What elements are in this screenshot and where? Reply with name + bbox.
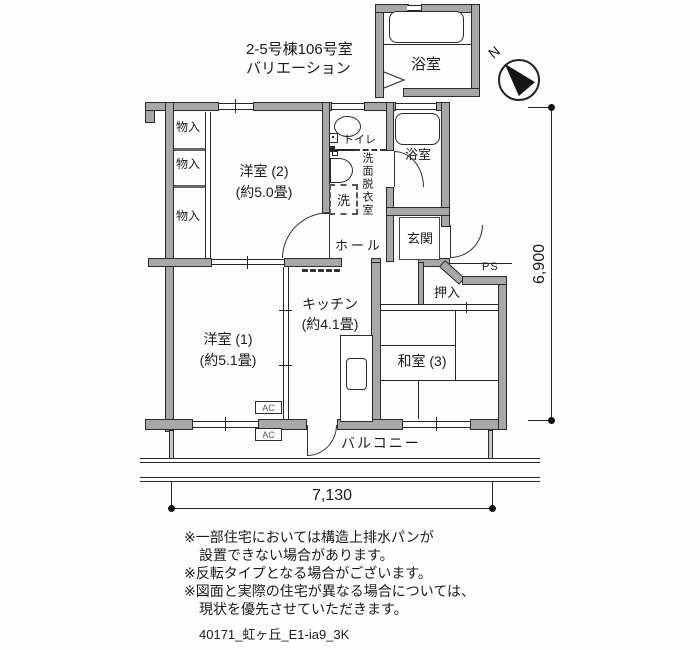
north-label: N <box>485 43 503 62</box>
ac-unit-2: AC <box>255 428 282 441</box>
room-label-hall: ホール <box>322 235 396 254</box>
note-line: 設置できない場合があります。 <box>184 546 475 564</box>
room-size: (約5.1畳) <box>167 350 289 371</box>
laundry-box: 洗 <box>329 184 358 215</box>
folding-door-icon <box>383 71 407 91</box>
window-tick <box>235 99 236 113</box>
dim-height-label: 6,900 <box>531 229 549 299</box>
room-label-washroom: 洗面脱衣室 <box>359 152 375 217</box>
note-line: ※反転タイプとなる場合がございます。 <box>184 564 475 582</box>
ac-label: AC <box>262 430 275 440</box>
room-size: (約5.0畳) <box>202 182 326 203</box>
dim-dot <box>548 104 555 111</box>
wall <box>145 419 193 430</box>
room-name: 洋室 (1) <box>167 329 289 350</box>
wall <box>284 258 342 267</box>
line <box>450 263 512 264</box>
tatami-line <box>381 380 498 381</box>
room-label-japanese3: 和室 (3) <box>377 351 467 371</box>
room-label-western2: 洋室 (2) (約5.0畳) <box>202 161 326 203</box>
title-line-2: バリエーション <box>246 59 353 78</box>
disclaimer-notes: ※一部住宅においては構造上排水パンが 設置できない場合があります。 ※反転タイプ… <box>184 528 475 618</box>
room-label-kitchen: キッチン (約4.1畳) <box>289 294 371 334</box>
room-label-laundry: 洗 <box>337 190 350 209</box>
tatami-line <box>381 345 455 346</box>
line <box>174 148 205 151</box>
washbasin-icon <box>330 158 353 183</box>
dim-dot <box>548 417 555 424</box>
balcony-railing <box>140 458 540 459</box>
room-label-balcony: バルコニー <box>341 433 421 453</box>
room-label-genkan: 玄関 <box>398 228 442 247</box>
kitchen-sliding-door-dashed <box>302 269 340 272</box>
floorplan-page: 2-5号棟106号室 バリエーション N 浴室 PS <box>0 0 700 650</box>
dim-dot <box>489 505 496 512</box>
wall <box>403 88 480 97</box>
toilet-tank-icon <box>329 133 338 143</box>
ac-unit-1: AC <box>255 401 282 414</box>
window <box>332 103 364 110</box>
window-tick <box>247 256 248 269</box>
sliding-partition <box>212 259 284 265</box>
wall <box>145 102 219 111</box>
plan-code: 40171_虹ヶ丘_E1-ia9_3K <box>199 624 349 643</box>
title-line-1: 2-5号棟106号室 <box>246 40 353 59</box>
window-tick <box>225 417 226 431</box>
room-name: 洋室 (2) <box>202 161 326 182</box>
door-arc-balcony <box>307 425 337 456</box>
note-line: ※一部住宅においては構造上排水パンが <box>184 528 475 546</box>
room-label-ps: PS <box>482 261 499 273</box>
fusuma-doors <box>381 304 498 311</box>
wall <box>253 102 332 111</box>
tatami-line <box>418 380 419 419</box>
balcony-divider <box>488 430 493 459</box>
room-label-toilet: トイレ <box>343 131 376 147</box>
wall <box>471 4 480 97</box>
room-label-storage-2: 物入 <box>176 155 200 172</box>
ac-label: AC <box>262 403 275 413</box>
note-line: ※図面と実際の住宅が異なる場合については、 <box>184 582 475 600</box>
wall <box>386 102 394 151</box>
room-label-storage-3: 物入 <box>176 207 200 224</box>
line <box>174 185 205 188</box>
wall <box>498 276 507 430</box>
toilet-door-dashed <box>354 149 386 151</box>
balcony-railing <box>140 462 540 463</box>
room-label-western1: 洋室 (1) (約5.1畳) <box>167 329 289 371</box>
window <box>219 103 253 110</box>
wall <box>165 102 174 432</box>
dim-line-horizontal <box>171 508 493 509</box>
room-size: (約4.1畳) <box>289 314 371 334</box>
wall <box>386 207 450 216</box>
door-arc-entrance <box>450 225 483 258</box>
wall <box>148 258 212 267</box>
room-label-bath-top: 浴室 <box>386 53 466 74</box>
ground-line <box>140 481 540 482</box>
room-name: キッチン <box>289 294 371 314</box>
bathtub-icon <box>395 113 440 145</box>
faucet-icon <box>332 151 338 156</box>
window-tick <box>436 417 437 431</box>
ground-line <box>140 477 540 478</box>
note-line: 現状を優先させていただきます。 <box>184 600 475 618</box>
room-label-storage-1: 物入 <box>176 118 200 135</box>
kitchen-sink-icon <box>346 358 367 390</box>
room-label-bath: 浴室 <box>394 144 442 163</box>
plan-title: 2-5号棟106号室 バリエーション <box>246 40 353 78</box>
dim-line-vertical <box>551 107 552 421</box>
dim-dot <box>168 505 175 512</box>
wall <box>145 110 155 123</box>
window-tick <box>466 302 467 313</box>
dim-width-label: 7,130 <box>282 487 382 505</box>
window <box>396 103 436 110</box>
room-label-oshiire: 押入 <box>412 282 482 301</box>
bathtub-icon <box>389 11 464 43</box>
balcony-divider <box>169 430 174 459</box>
line <box>384 44 472 45</box>
dot <box>332 136 334 138</box>
